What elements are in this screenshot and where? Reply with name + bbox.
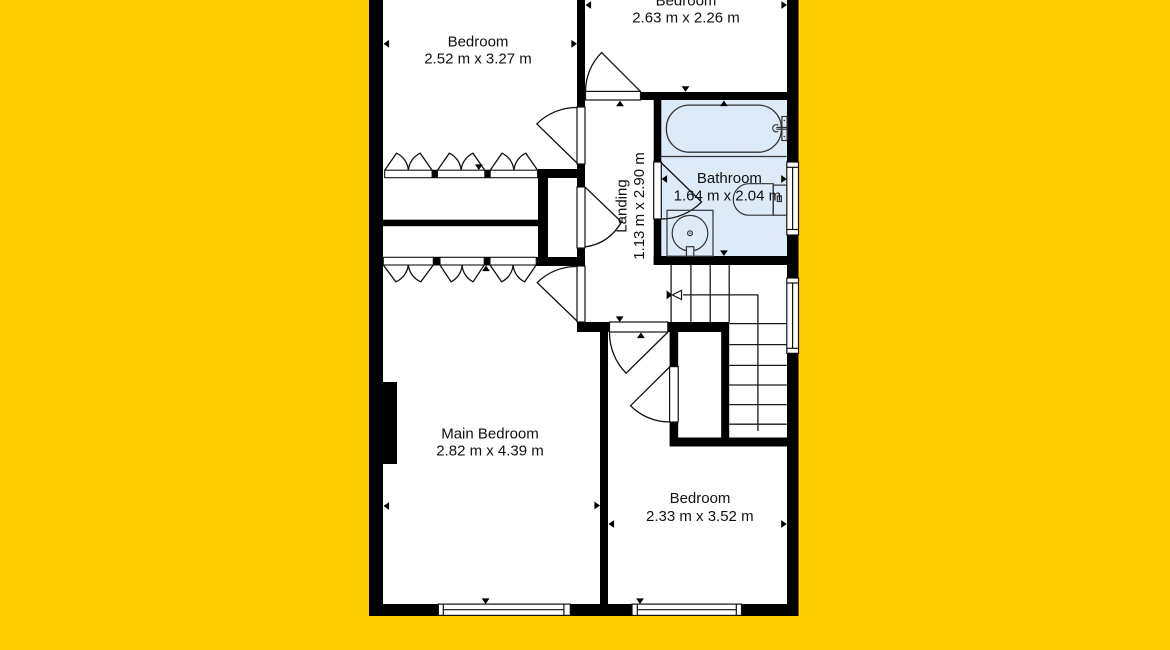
svg-text:1.64 m x 2.04 m: 1.64 m x 2.04 m: [674, 187, 782, 204]
svg-text:Bathroom: Bathroom: [697, 170, 762, 187]
svg-text:1.13 m x 2.90 m: 1.13 m x 2.90 m: [631, 152, 648, 260]
svg-text:2.63 m x 2.26 m: 2.63 m x 2.26 m: [632, 9, 740, 26]
svg-text:2.52 m x 3.27 m: 2.52 m x 3.27 m: [424, 50, 532, 67]
svg-text:Bedroom: Bedroom: [670, 490, 731, 507]
svg-text:Main Bedroom: Main Bedroom: [441, 425, 539, 442]
svg-text:Bedroom: Bedroom: [448, 33, 509, 50]
svg-text:2.82 m x 4.39 m: 2.82 m x 4.39 m: [436, 442, 544, 459]
svg-text:Landing: Landing: [613, 179, 630, 232]
svg-text:Bedroom: Bedroom: [656, 0, 717, 9]
svg-text:2.33 m x 3.52 m: 2.33 m x 3.52 m: [646, 508, 754, 525]
